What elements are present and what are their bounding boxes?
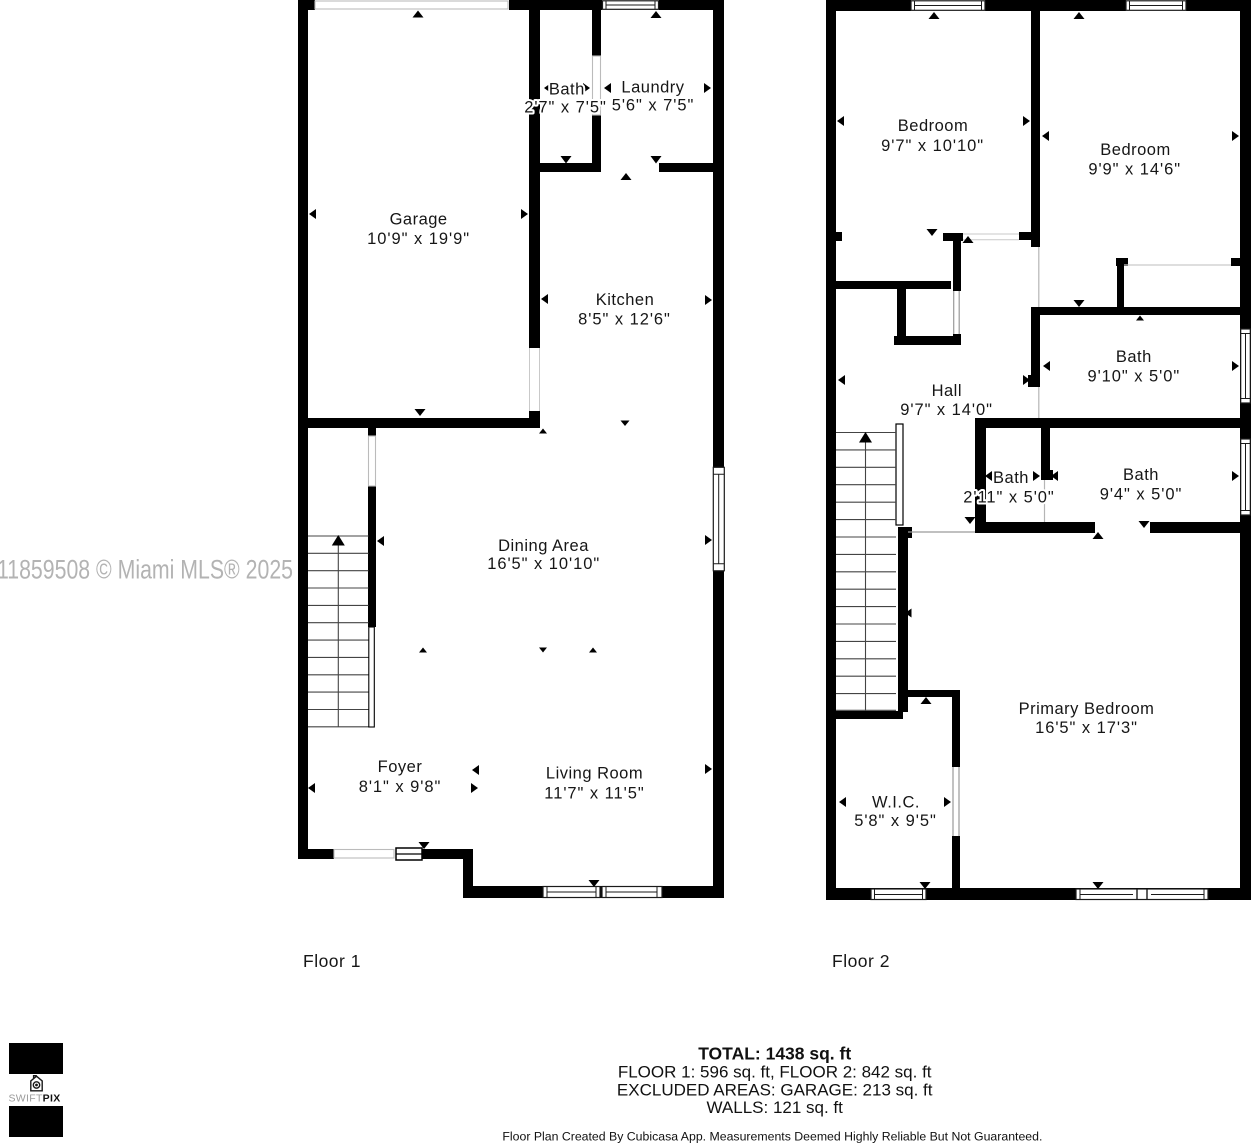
svg-text:5'6" x 7'5": 5'6" x 7'5" — [612, 97, 695, 115]
svg-text:Living Room: Living Room — [546, 765, 643, 783]
svg-text:Bedroom: Bedroom — [1100, 141, 1170, 159]
svg-text:9'4" x 5'0": 9'4" x 5'0" — [1100, 486, 1183, 504]
svg-text:Primary Bedroom: Primary Bedroom — [1019, 700, 1155, 718]
svg-text:EXCLUDED AREAS: GARAGE: 213 sq: EXCLUDED AREAS: GARAGE: 213 sq. ft — [617, 1080, 933, 1099]
svg-text:Hall: Hall — [932, 382, 962, 400]
svg-text:Floor Plan Created By Cubicasa: Floor Plan Created By Cubicasa App. Meas… — [502, 1130, 1042, 1144]
svg-text:8'1" x 9'8": 8'1" x 9'8" — [359, 778, 442, 796]
svg-text:9'7" x 14'0": 9'7" x 14'0" — [900, 401, 993, 419]
svg-text:2'7" x 7'5": 2'7" x 7'5" — [524, 99, 607, 117]
svg-text:8'5" x 12'6": 8'5" x 12'6" — [578, 311, 671, 329]
svg-text:11'7" x 11'5": 11'7" x 11'5" — [544, 784, 644, 802]
svg-text:WALLS: 121 sq. ft: WALLS: 121 sq. ft — [707, 1098, 844, 1117]
svg-text:Bedroom: Bedroom — [898, 117, 968, 135]
svg-text:FLOOR 1: 596 sq. ft, FLOOR 2:: FLOOR 1: 596 sq. ft, FLOOR 2: 842 sq. ft — [618, 1062, 932, 1081]
svg-text:Bath: Bath — [1116, 348, 1152, 366]
svg-text:16'5" x 17'3": 16'5" x 17'3" — [1035, 719, 1138, 737]
svg-text:2'11" x 5'0": 2'11" x 5'0" — [963, 489, 1055, 507]
svg-text:Kitchen: Kitchen — [596, 291, 655, 309]
svg-text:10'9" x 19'9": 10'9" x 19'9" — [367, 230, 470, 248]
svg-text:Foyer: Foyer — [378, 758, 423, 776]
svg-text:SWIFTPIX: SWIFTPIX — [9, 1093, 61, 1105]
svg-text:W.I.C.: W.I.C. — [872, 793, 920, 811]
svg-text:5'8" x 9'5": 5'8" x 9'5" — [854, 812, 937, 830]
svg-text:Dining Area: Dining Area — [498, 537, 589, 555]
svg-text:Floor 1: Floor 1 — [303, 951, 361, 971]
svg-text:Floor 2: Floor 2 — [832, 951, 890, 971]
svg-text:11859508 © Miami MLS® 2025: 11859508 © Miami MLS® 2025 — [0, 555, 293, 585]
svg-text:Garage: Garage — [390, 211, 448, 229]
svg-text:9'7" x 10'10": 9'7" x 10'10" — [881, 137, 984, 155]
svg-text:9'10" x 5'0": 9'10" x 5'0" — [1087, 368, 1180, 386]
svg-text:Laundry: Laundry — [621, 79, 684, 97]
svg-text:Bath: Bath — [549, 81, 585, 99]
svg-text:Bath: Bath — [1123, 466, 1159, 484]
svg-text:Bath: Bath — [993, 469, 1029, 487]
svg-text:TOTAL: 1438 sq. ft: TOTAL: 1438 sq. ft — [698, 1043, 851, 1063]
svg-text:16'5" x 10'10": 16'5" x 10'10" — [487, 555, 600, 573]
svg-text:9'9" x 14'6": 9'9" x 14'6" — [1088, 161, 1181, 179]
